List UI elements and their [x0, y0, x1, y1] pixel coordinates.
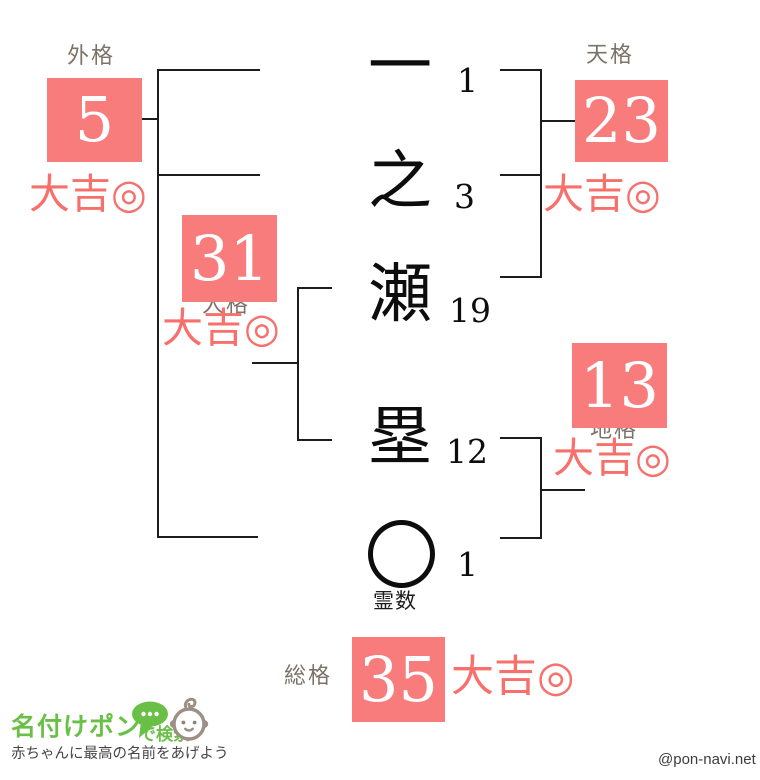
tenkaku-bracket-arm-mid — [500, 174, 542, 176]
soukaku-score-box: 35 — [352, 637, 445, 722]
baby-face-icon — [171, 699, 207, 739]
gaikaku-bracket-spine — [157, 69, 159, 538]
gaikaku-bracket-arm-bottom — [157, 536, 258, 538]
soukaku-result: 大吉◎ — [451, 656, 575, 699]
chikaku-bracket-spine — [540, 437, 542, 539]
chikaku-bracket-arm-top — [500, 437, 542, 439]
chikaku-value: 13 — [580, 355, 659, 417]
soukaku-label: 総格 — [284, 665, 332, 687]
jinkaku-result: 大吉◎ — [162, 308, 280, 349]
jinkaku-bracket-spine — [297, 287, 299, 441]
tenkaku-label: 天格 — [586, 44, 634, 66]
chikaku-box-connector-line — [540, 489, 585, 491]
stroke-count-spirit: 1 — [457, 548, 478, 581]
tenkaku-score-box: 23 — [575, 80, 668, 162]
gaikaku-bracket-arm-top — [157, 69, 260, 71]
speech-bubble-icon — [132, 702, 168, 739]
jinkaku-bracket-arm-bottom — [297, 439, 332, 441]
gaikaku-label: 外格 — [67, 45, 115, 67]
jinkaku-bracket-arm-top — [297, 287, 332, 289]
soukaku-value: 35 — [359, 649, 438, 711]
tenkaku-result: 大吉◎ — [543, 174, 661, 215]
tenkaku-bracket-spine — [540, 69, 542, 278]
tenkaku-bracket-arm-bottom — [500, 276, 542, 278]
name-char-1: 一 — [362, 35, 438, 99]
name-char-3: 瀬 — [362, 263, 438, 327]
chikaku-result: 大吉◎ — [553, 438, 671, 479]
name-char-2: 之 — [362, 150, 438, 214]
spirit-number-circle — [368, 520, 435, 588]
brand-logo-text: 名付けポン — [11, 715, 141, 740]
gaikaku-value: 5 — [75, 89, 114, 151]
gaikaku-score-box: 5 — [47, 78, 142, 162]
name-char-4: 塁 — [362, 406, 438, 470]
gaikaku-box-connector-line — [141, 118, 158, 120]
brand-logo-mark — [126, 694, 216, 752]
chikaku-bracket-arm-bottom — [500, 537, 542, 539]
stroke-count-3: 19 — [449, 294, 491, 327]
tenkaku-bracket-arm-top — [500, 69, 542, 71]
site-credit: @pon-navi.net — [658, 752, 756, 767]
gaikaku-result: 大吉◎ — [29, 174, 147, 215]
tenkaku-value: 23 — [582, 90, 661, 152]
stroke-count-4: 12 — [446, 435, 488, 468]
chikaku-score-box: 13 — [572, 343, 667, 428]
stroke-count-1: 1 — [457, 64, 478, 97]
gaikaku-bracket-arm-mid — [157, 174, 260, 176]
stroke-count-2: 3 — [454, 180, 475, 213]
jinkaku-value: 31 — [190, 228, 269, 290]
spirit-number-label: 霊数 — [373, 591, 417, 612]
seimei-handan-diagram: 外格 天格 人格 地格 総格 5 23 31 13 35 大吉◎ 大吉◎ 大吉◎… — [0, 0, 760, 780]
jinkaku-box-connector-line — [252, 362, 299, 364]
tenkaku-box-connector-line — [540, 120, 576, 122]
jinkaku-score-box: 31 — [182, 215, 277, 302]
